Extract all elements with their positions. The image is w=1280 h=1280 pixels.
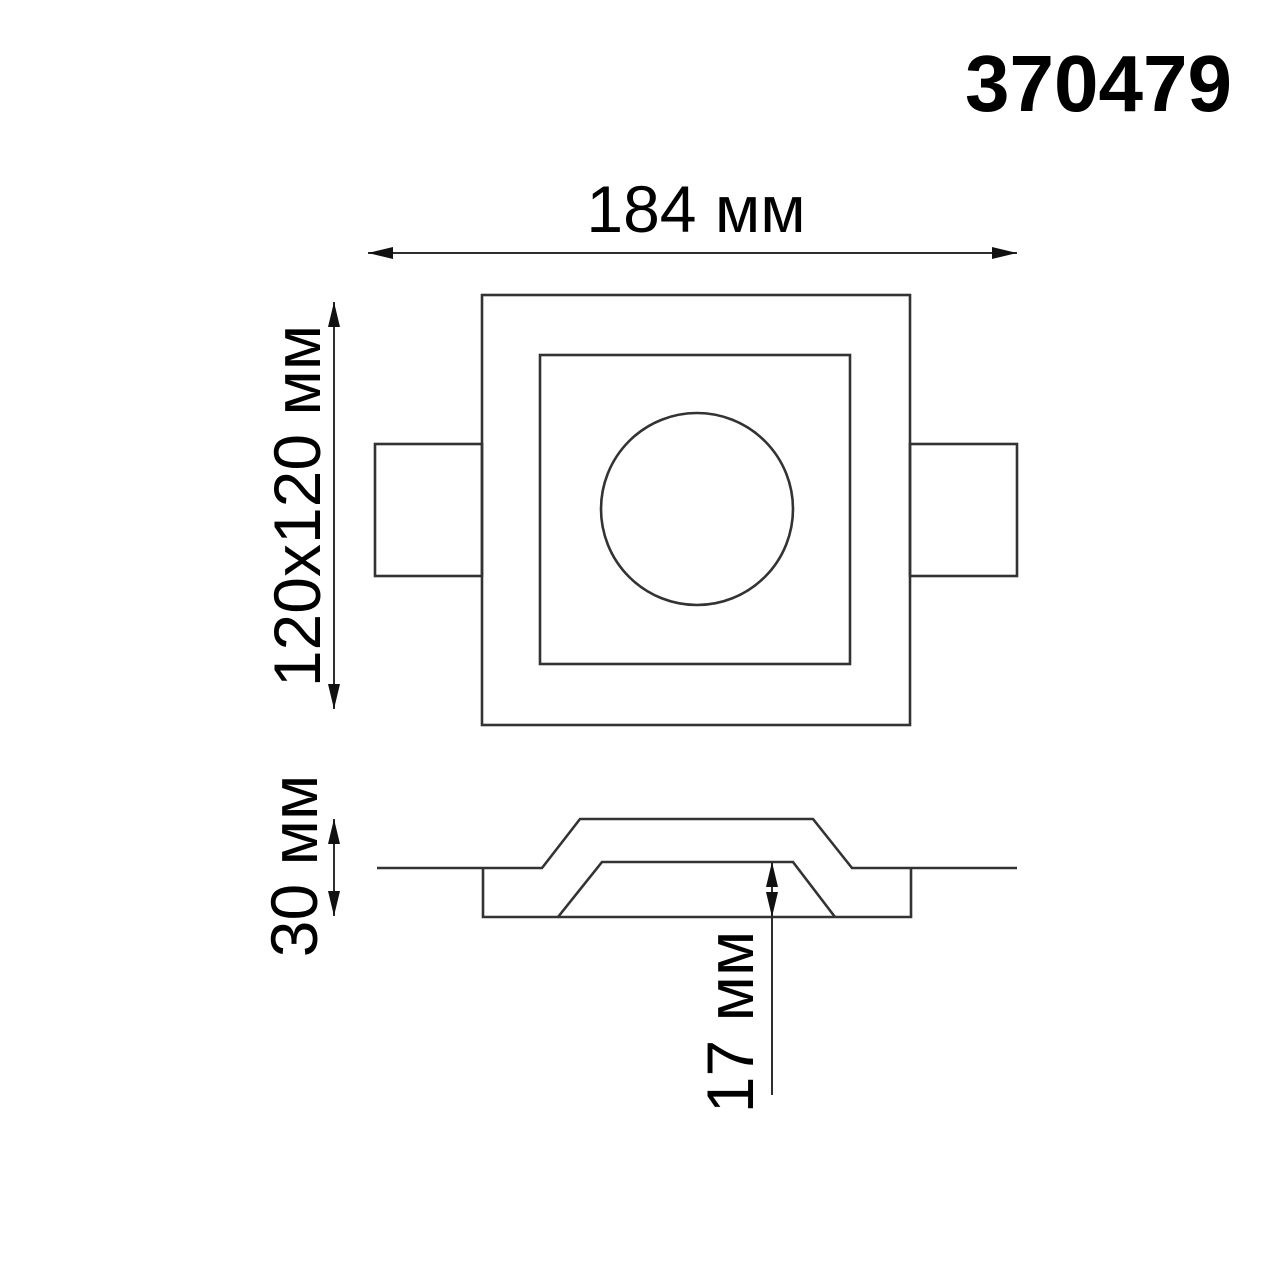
top-view-lamp-opening-circle: [601, 413, 793, 605]
recess-depth-arrow-up-icon: [766, 862, 778, 887]
height-dimension-label: 30 мм: [257, 775, 331, 958]
product-code: 370479: [965, 39, 1232, 128]
section-view: [377, 819, 1017, 917]
recess-depth-arrow-down-icon: [766, 892, 778, 917]
top-view-right-tab: [910, 444, 1017, 576]
width-dimension-arrow-left-icon: [368, 247, 393, 259]
recess-depth-dimension-label: 17 мм: [693, 931, 767, 1114]
recess-depth-dimension: [766, 862, 778, 1095]
width-dimension-arrow-right-icon: [992, 247, 1017, 259]
width-dimension-label: 184 мм: [586, 172, 805, 246]
section-cavity-outline: [558, 862, 835, 917]
top-view-left-tab: [375, 444, 482, 576]
section-ceiling-and-body-profile: [377, 819, 1017, 868]
top-view-outer-square: [482, 295, 910, 725]
top-view-inner-square: [540, 355, 850, 664]
technical-drawing-page: 370479 184 мм 120x120 мм 30 мм 17 мм: [0, 0, 1280, 1280]
face-dimension-arrow-bottom-icon: [328, 684, 340, 709]
top-view: [375, 295, 1017, 725]
width-dimension: [368, 247, 1017, 259]
face-dimension-label: 120x120 мм: [260, 325, 334, 687]
dimension-drawing: 370479 184 мм 120x120 мм 30 мм 17 мм: [0, 0, 1280, 1280]
section-base-outline: [483, 868, 911, 917]
face-dimension-arrow-top-icon: [328, 302, 340, 327]
